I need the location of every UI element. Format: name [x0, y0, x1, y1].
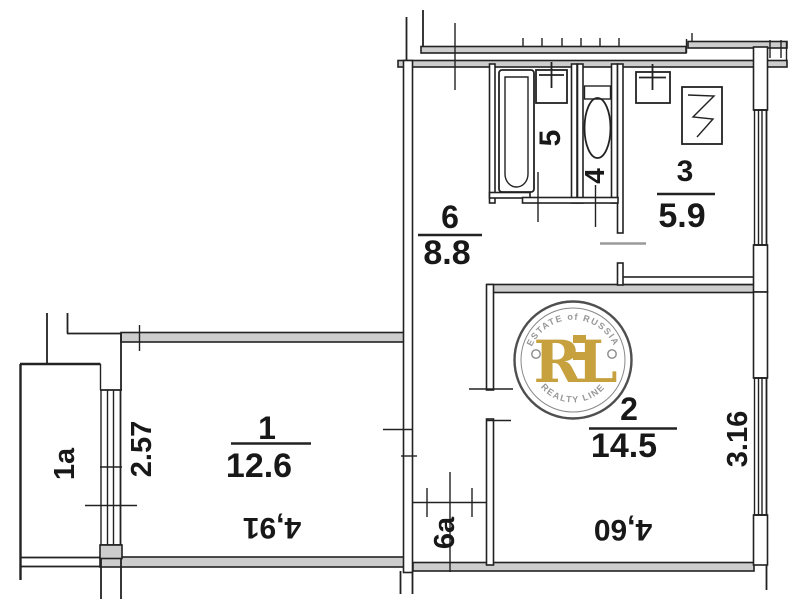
room2-window	[754, 378, 768, 515]
wall-kitchen-left-lower	[618, 263, 624, 285]
floor-plan: 6 8.8 5 4 3 5.9 2 14.5 4,60 3.16 1 12.6 …	[0, 0, 800, 600]
corridor-number: 6a	[429, 516, 461, 549]
kitchen-window	[754, 110, 768, 245]
right-wall-windows	[754, 42, 787, 590]
kitchen-sink-icon	[636, 64, 670, 103]
wall-bath-wc-bottom	[523, 198, 619, 204]
hall-number: 6	[441, 199, 459, 235]
exterior-walls	[100, 42, 787, 572]
bathtub-icon	[499, 70, 534, 192]
wall-room1-bottom	[100, 557, 412, 567]
wall-kitchen-left-upper	[618, 64, 624, 233]
wall-bath-right	[572, 64, 578, 203]
wall-bath-left	[490, 64, 496, 203]
wall-room2-left-upper	[487, 285, 494, 391]
stove-icon	[682, 87, 722, 144]
hall-area: 8.8	[423, 234, 470, 272]
wall-hall-left	[404, 61, 413, 573]
balcony-number: 1a	[49, 447, 81, 480]
wc-number: 4	[579, 168, 610, 184]
room2-width-dim: 4,60	[594, 513, 652, 546]
wall-room1-top	[121, 333, 412, 343]
room1-number: 1	[258, 410, 276, 446]
wall-top-right	[688, 42, 787, 49]
wall-kitchen-bottom	[618, 277, 757, 285]
toilet-icon	[585, 86, 611, 158]
room1-depth-dim: 2.57	[126, 421, 158, 477]
wall-wc-right	[612, 64, 618, 203]
bathroom-number: 5	[534, 130, 567, 147]
watermark-stamp: ESTATE of RUSSIA REALTY LINE RL	[511, 298, 635, 422]
wall-room2-left-lower	[487, 419, 494, 565]
wall-top-inner	[398, 61, 787, 68]
wall-south	[413, 563, 754, 572]
room1-area: 12.6	[226, 447, 292, 485]
kitchen-number: 3	[677, 155, 694, 188]
room2-depth-dim: 3.16	[722, 411, 754, 467]
wall-top-left	[421, 47, 686, 54]
watermark-initials: RL	[534, 328, 617, 396]
room1-width-dim: 4,91	[243, 511, 301, 544]
room2-area: 14.5	[591, 427, 657, 465]
bathroom-sink-icon	[536, 62, 567, 103]
kitchen-area: 5.9	[658, 197, 705, 235]
